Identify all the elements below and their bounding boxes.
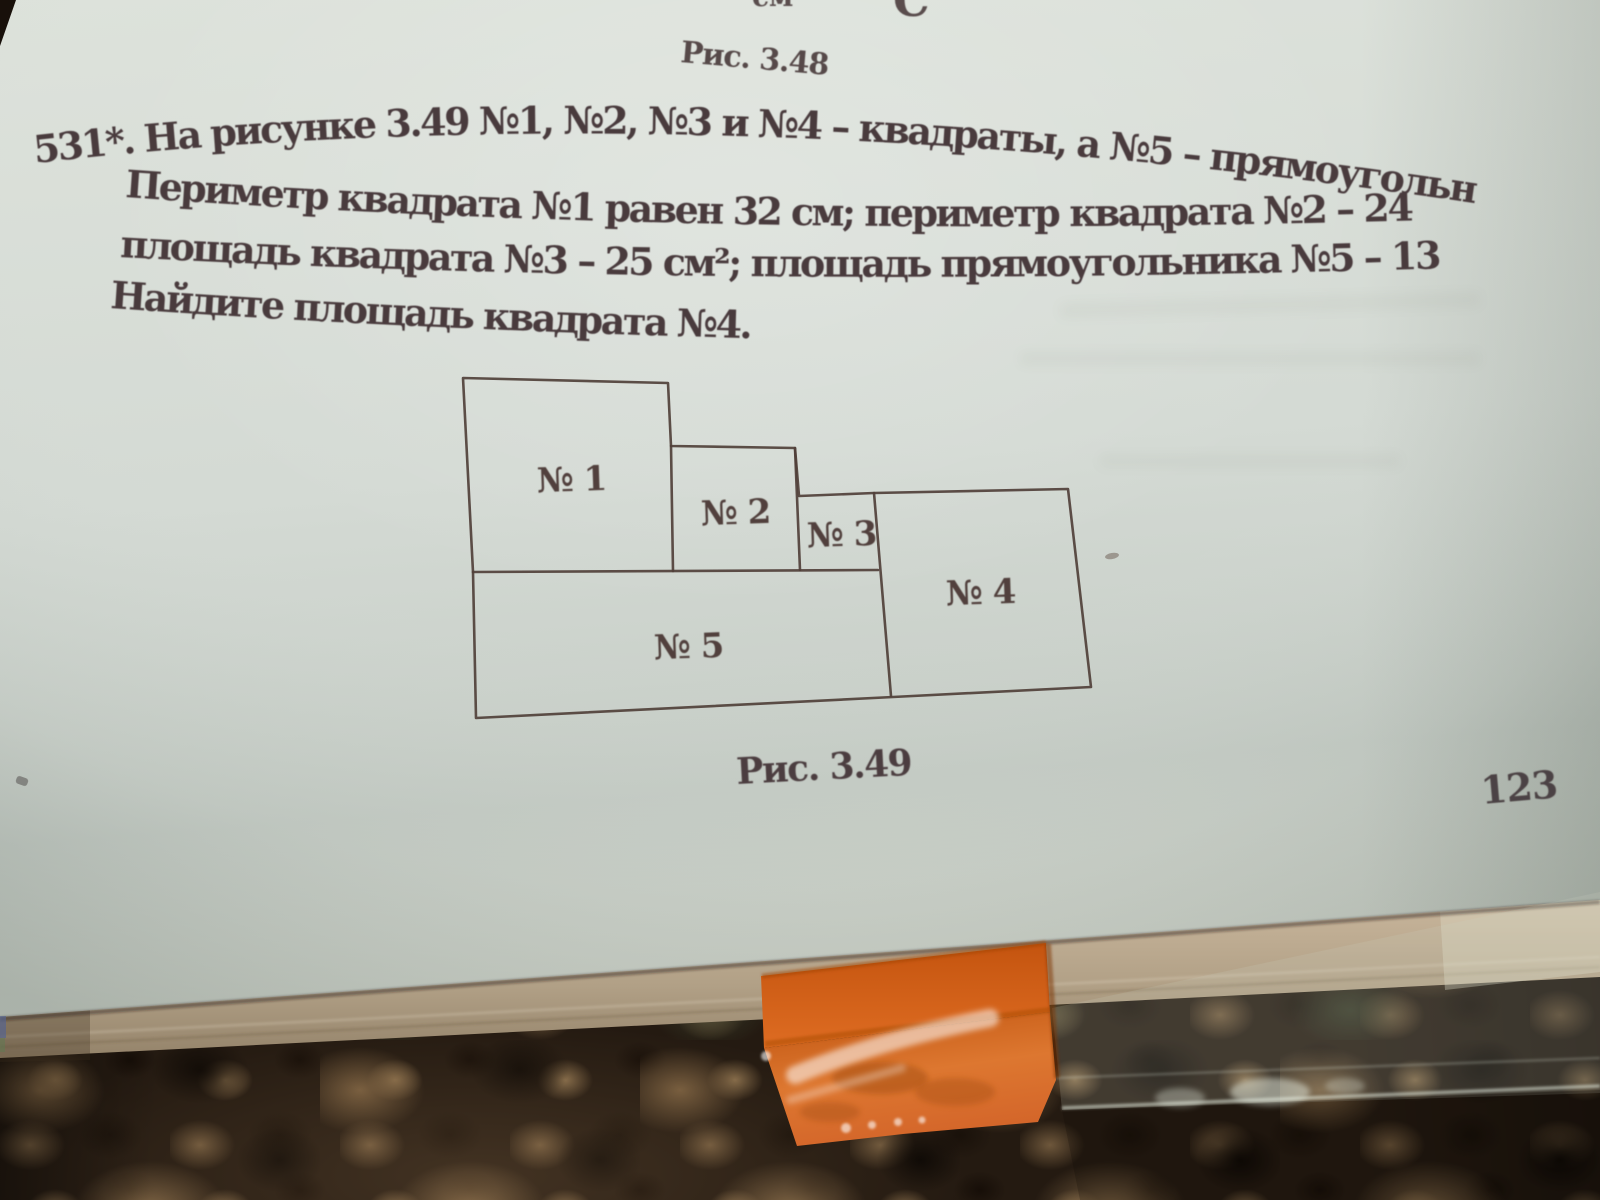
photo-of-textbook-page: см C Рис. 3.48 531*. На рисунке 3.49 №1,… [0,0,1600,1200]
square2-label: № 2 [700,492,771,534]
square3-label: № 3 [806,514,877,556]
square4-label: № 4 [945,572,1016,614]
blue-edge-mark [0,1016,6,1038]
page-number: 123 [1479,761,1559,812]
cropped-text-fragment: см [752,0,793,13]
tape-dark-mottle [915,1078,995,1106]
rect5-label: № 5 [653,626,724,668]
tape-dark-mottle [800,1102,860,1122]
square1-label: № 1 [536,459,607,501]
cropped-letter-fragment: C [893,0,930,27]
film-shine-blob [1325,1078,1365,1094]
green-edge-mark [0,1038,5,1052]
page-scene: см C Рис. 3.48 531*. На рисунке 3.49 №1,… [0,0,1600,1200]
orange-tape [761,943,1057,1146]
